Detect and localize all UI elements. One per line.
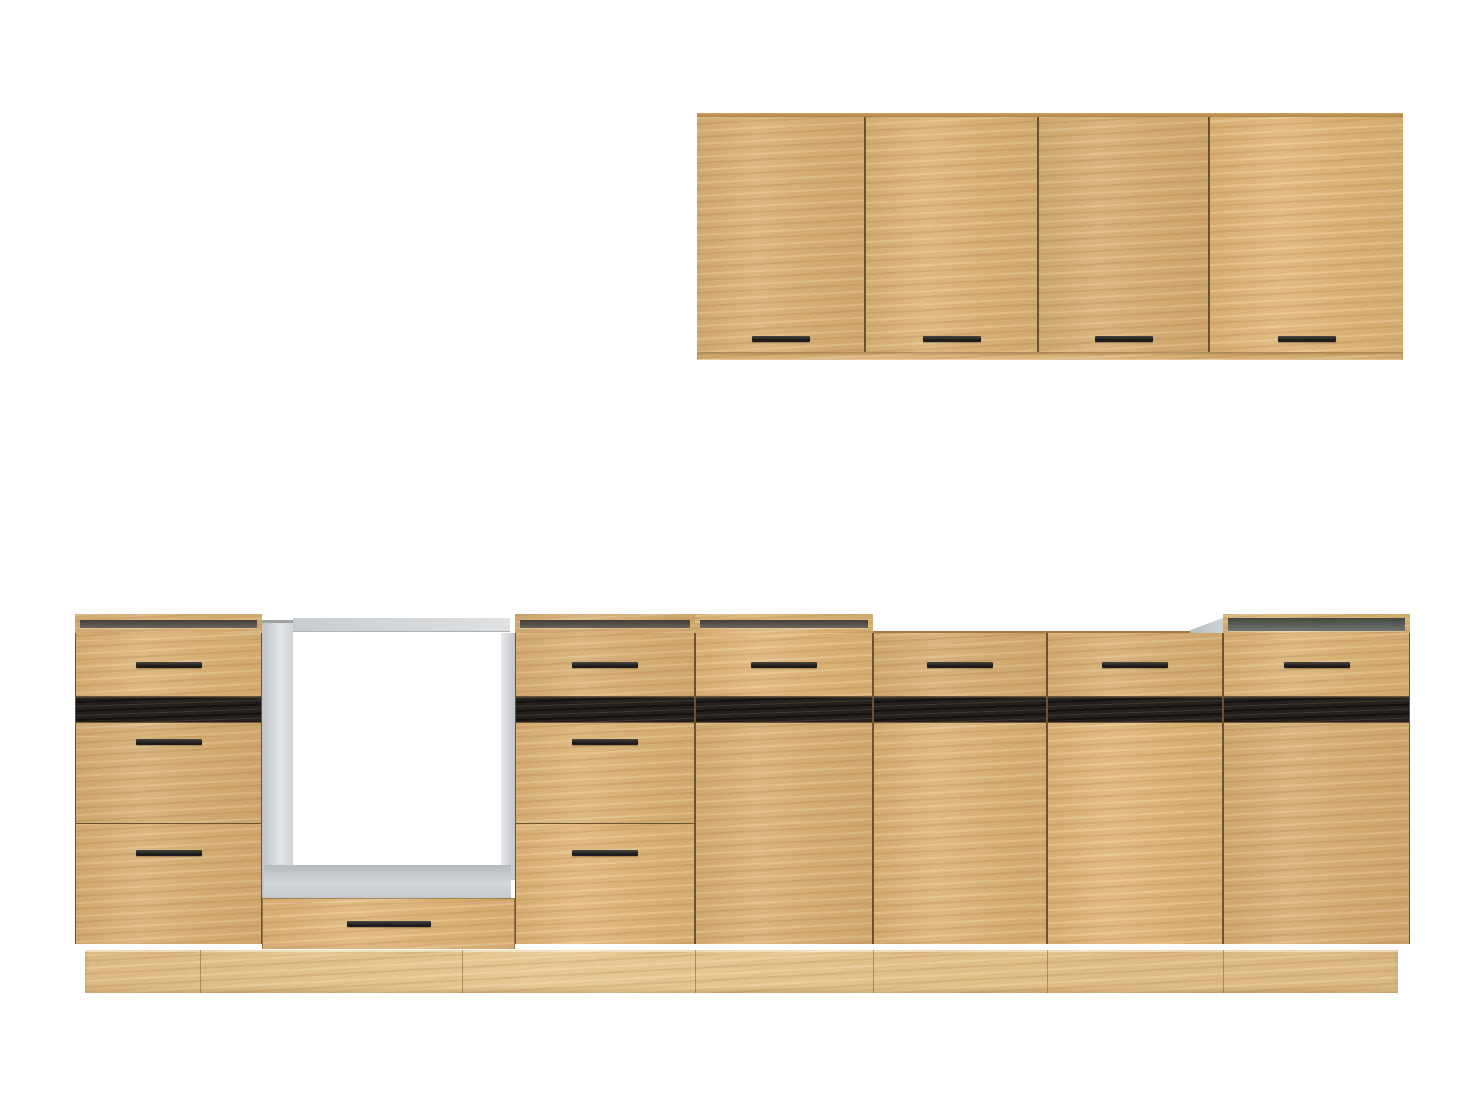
cabinet-handle [1102, 662, 1168, 668]
open-carcass-top [695, 614, 873, 633]
cabinet-handle [347, 921, 431, 927]
drawer-front [516, 824, 694, 944]
door-front [1048, 723, 1222, 944]
door-front [874, 723, 1046, 944]
cabinet-handle [572, 739, 638, 745]
door-front [696, 723, 872, 944]
unit-front [1223, 633, 1410, 944]
product-photo [0, 0, 1480, 1110]
wall-cabinet-door-3 [1039, 117, 1208, 352]
cabinet-handle [923, 336, 981, 342]
carcass-interior [700, 620, 868, 628]
base-cabinet-run [75, 612, 1410, 952]
drawer-front [1224, 633, 1409, 696]
door-front [1224, 723, 1409, 944]
drawer-front [76, 723, 261, 823]
housing-cavity-floor [264, 865, 511, 899]
cabinet-handle [136, 739, 202, 745]
plinth-seam [1047, 950, 1048, 993]
drawer-front [1048, 633, 1222, 696]
oven-housing-unit [262, 612, 515, 948]
cabinet-handle [572, 850, 638, 856]
drawer-front [76, 633, 261, 696]
drawer-front [516, 633, 694, 696]
wall-cabinet [697, 113, 1403, 360]
wall-cabinet-bottom-edge [697, 352, 1403, 360]
accent-strip [874, 697, 1046, 722]
base-drawer-unit-left [75, 612, 262, 948]
cabinet-handle [572, 662, 638, 668]
cabinet-handle [927, 662, 993, 668]
cabinet-handle [1284, 662, 1350, 668]
drawer-front [516, 723, 694, 823]
base-door-unit-3 [1047, 612, 1223, 948]
carcass-interior [1228, 618, 1405, 631]
accent-strip [696, 697, 872, 722]
unit-front [1047, 633, 1223, 944]
base-drawer-unit-middle [515, 612, 695, 948]
wall-cabinet-door-1 [697, 117, 864, 352]
housing-back-rail [293, 618, 510, 632]
base-sink-unit-right [1223, 612, 1410, 948]
unit-front [873, 633, 1047, 944]
carcass-interior [520, 620, 690, 628]
cabinet-handle [136, 850, 202, 856]
plinth-seam [462, 950, 463, 993]
cabinet-handle [1278, 336, 1336, 342]
plinth-seam [873, 950, 874, 993]
base-door-unit-1 [695, 612, 873, 948]
wall-cabinet-doors [697, 117, 1403, 352]
unit-front [695, 633, 873, 944]
base-door-unit-2 [873, 612, 1047, 948]
wall-cabinet-door-2 [866, 117, 1037, 352]
open-carcass-top [75, 614, 262, 633]
drawer-front [874, 633, 1046, 696]
cabinet-handle [751, 662, 817, 668]
carcass-interior [80, 620, 257, 628]
housing-bottom-drawer [262, 898, 515, 949]
plinth-seam [200, 950, 201, 993]
accent-strip [1048, 697, 1222, 722]
housing-side-panel [262, 620, 293, 901]
housing-inner-wall [501, 633, 515, 880]
cabinet-handle [752, 336, 810, 342]
unit-front [515, 633, 695, 944]
accent-strip [516, 697, 694, 722]
drawer-front [76, 824, 261, 944]
open-carcass-top [515, 614, 695, 633]
cabinet-handle [136, 662, 202, 668]
unit-front [75, 633, 262, 944]
accent-strip [76, 697, 261, 722]
plinth-seam [1223, 950, 1224, 993]
cabinet-handle [1095, 336, 1153, 342]
open-carcass-top [1223, 614, 1410, 633]
accent-strip [1224, 697, 1409, 722]
wall-cabinet-door-4 [1210, 117, 1403, 352]
plinth [85, 950, 1398, 993]
plinth-seam [695, 950, 696, 993]
drawer-front [696, 633, 872, 696]
